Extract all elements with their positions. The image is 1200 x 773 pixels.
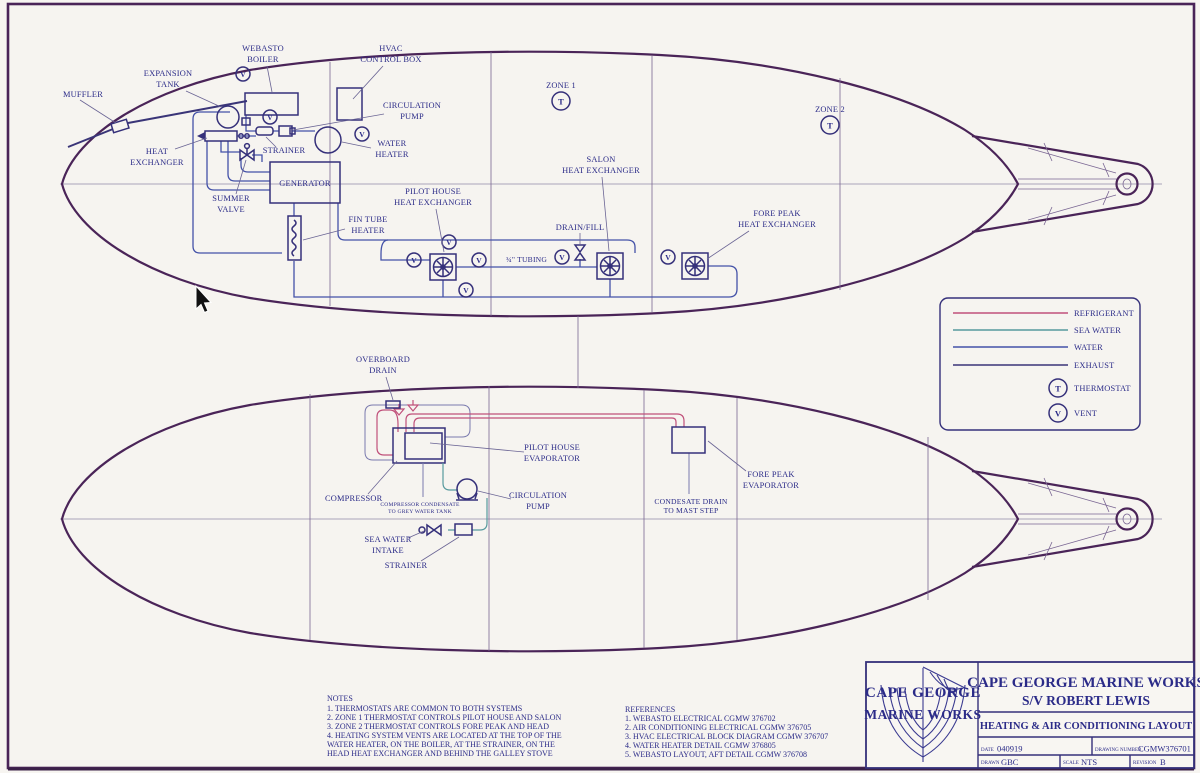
circulation-pump-bottom-label: PUMP	[526, 502, 550, 511]
compressor-condensate-label: COMPRESSOR CONDENSATE	[380, 502, 460, 508]
vent-letter: V	[359, 130, 365, 139]
salon-hx-label: HEAT EXCHANGER	[562, 166, 640, 175]
references-line: 2. AIR CONDITIONING ELECTRICAL CGMW 3767…	[625, 723, 811, 732]
drawn-label: DRAWN	[981, 761, 1000, 766]
webasto-boiler-label: BOILER	[247, 55, 279, 64]
zone1-label: ZONE 1	[546, 81, 576, 90]
heat-exchanger-label: EXCHANGER	[130, 158, 184, 167]
strainer-label: STRAINER	[263, 146, 306, 155]
condensate-drain-label: TO MAST STEP	[664, 506, 719, 515]
compressor-condensate-label: TO GREY WATER TANK	[388, 509, 452, 515]
drawing-title: HEATING & AIR CONDITIONING LAYOUT	[980, 721, 1192, 732]
summer-valve-label: SUMMER	[212, 194, 250, 203]
notes-line: 4. HEATING SYSTEM VENTS ARE LOCATED AT T…	[327, 731, 562, 740]
circulation-pump-bottom-label: CIRCULATION	[509, 491, 567, 500]
pilot-house-hx-label: HEAT EXCHANGER	[394, 198, 472, 207]
vent-letter: V	[476, 256, 482, 265]
heat-exchanger-label: HEAT	[146, 147, 168, 156]
legend-thermostat-label: THERMOSTAT	[1074, 384, 1131, 393]
notes-line: 2. ZONE 1 THERMOSTAT CONTROLS PILOT HOUS…	[327, 713, 561, 722]
legend-refrigerant-label: REFRIGERANT	[1074, 309, 1134, 318]
drawing-page: V V V V V V V V V T T MUFFLER EXPANSION …	[0, 0, 1200, 773]
fore-peak-hx-label: FORE PEAK	[753, 209, 800, 218]
references-line: 5. WEBASTO LAYOUT, AFT DETAIL CGMW 37670…	[625, 750, 807, 759]
logo-text-top: CAPE GEORGE	[865, 685, 981, 701]
fore-peak-evaporator-label: FORE PEAK	[747, 470, 794, 479]
overboard-drain-label: DRAIN	[369, 366, 397, 375]
legend-exhaust-label: EXHAUST	[1074, 361, 1114, 370]
water-heater-label: HEATER	[375, 150, 409, 159]
thermostat-letter: T	[827, 121, 833, 131]
fore-peak-hx-label: HEAT EXCHANGER	[738, 220, 816, 229]
circulation-pump-label: PUMP	[400, 112, 424, 121]
sea-water-intake-label: SEA WATER	[364, 535, 411, 544]
hvac-control-box-label: HVAC	[379, 44, 403, 53]
hvac-control-box-label: CONTROL BOX	[360, 55, 421, 64]
vent-letter: V	[1055, 409, 1062, 419]
compressor-label: COMPRESSOR	[325, 494, 383, 503]
pilot-house-evaporator-label: EVAPORATOR	[524, 454, 580, 463]
vent-letter: V	[240, 70, 246, 79]
drawing-number-value: CGMW376701	[1138, 744, 1191, 754]
notes-line: 1. THERMOSTATS ARE COMMON TO BOTH SYSTEM…	[327, 704, 522, 713]
notes-line: 3. ZONE 2 THERMOSTAT CONTROLS FORE PEAK …	[327, 722, 549, 731]
thermostat-letter: T	[558, 97, 564, 107]
vent-letter: V	[463, 286, 469, 295]
zone2-label: ZONE 2	[815, 105, 845, 114]
expansion-tank-label: EXPANSION	[144, 69, 193, 78]
circulation-pump-label: CIRCULATION	[383, 101, 441, 110]
hvac-layout-drawing: V V V V V V V V V T T MUFFLER EXPANSION …	[0, 0, 1200, 773]
vent-letter: V	[267, 113, 273, 122]
sea-water-intake-label: INTAKE	[372, 546, 404, 555]
vent-letter: V	[446, 238, 452, 247]
water-heater-label: WATER	[378, 139, 407, 148]
summer-valve-label: VALVE	[217, 205, 245, 214]
strainer-bottom-label: STRAINER	[385, 561, 428, 570]
legend-vent-label: VENT	[1074, 409, 1097, 418]
scale-value: NTS	[1081, 757, 1097, 767]
vent-letter: V	[665, 253, 671, 262]
vent-letter: V	[411, 256, 417, 265]
notes-title: NOTES	[327, 694, 353, 703]
pilot-house-evaporator-label: PILOT HOUSE	[524, 443, 580, 452]
vent-letter: V	[559, 253, 565, 262]
salon-hx-label: SALON	[587, 155, 616, 164]
legend: REFRIGERANT SEA WATER WATER EXHAUST THER…	[940, 298, 1140, 430]
date-value: 040919	[997, 744, 1023, 754]
title-block: CAPE GEORGE MARINE WORKS CAPE GEORGE MAR…	[864, 662, 1200, 768]
drawn-value: GBC	[1001, 757, 1019, 767]
condensate-drain-label: CONDESATE DRAIN	[654, 497, 728, 506]
tubing-label: ¾" TUBING	[506, 255, 547, 264]
fore-peak-evaporator-label: EVAPORATOR	[743, 481, 799, 490]
muffler-label: MUFFLER	[63, 90, 103, 99]
references-line: 4. WATER HEATER DETAIL CGMW 376805	[625, 741, 776, 750]
date-label: DATE	[981, 748, 994, 753]
revision-value: B	[1160, 757, 1166, 767]
legend-water-label: WATER	[1074, 343, 1103, 352]
scale-label: SCALE	[1063, 761, 1079, 766]
pilot-house-hx-label: PILOT HOUSE	[405, 187, 461, 196]
fin-tube-heater-label: HEATER	[351, 226, 385, 235]
notes-line: HEAD HEAT EXCHANGER AND BEHIND THE GALLE…	[327, 749, 553, 758]
generator-label: GENERATOR	[279, 179, 331, 188]
vessel-name: S/V ROBERT LEWIS	[1022, 693, 1150, 708]
legend-sea-water-label: SEA WATER	[1074, 326, 1121, 335]
logo-text-bottom: MARINE WORKS	[864, 707, 981, 722]
references-line: 1. WEBASTO ELECTRICAL CGMW 376702	[625, 714, 776, 723]
thermostat-letter: T	[1055, 384, 1061, 394]
company-name: CAPE GEORGE MARINE WORKS	[967, 675, 1200, 691]
references-title: REFERENCES	[625, 705, 675, 714]
notes-line: WATER HEATER, ON THE BOILER, AT THE STRA…	[327, 740, 555, 749]
overboard-drain-label: OVERBOARD	[356, 355, 410, 364]
webasto-boiler-label: WEBASTO	[242, 44, 284, 53]
references-line: 3. HVAC ELECTRICAL BLOCK DIAGRAM CGMW 37…	[625, 732, 828, 741]
drain-fill-label: DRAIN/FILL	[556, 223, 605, 232]
drawing-number-label: DRAWING NUMBER	[1095, 748, 1142, 753]
fin-tube-heater-label: FIN TUBE	[349, 215, 388, 224]
revision-label: REVISION	[1133, 761, 1157, 766]
expansion-tank-label: TANK	[156, 80, 179, 89]
